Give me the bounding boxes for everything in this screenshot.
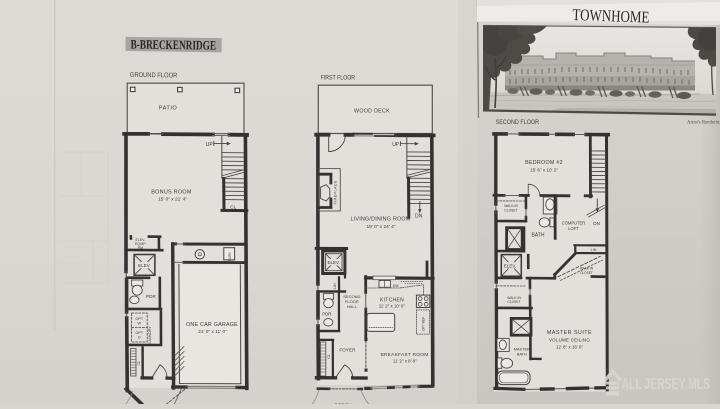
svg-text:11' 2" x 8' 8": 11' 2" x 8' 8" bbox=[393, 359, 417, 364]
svg-text:15' 0" x 21' 4": 15' 0" x 21' 4" bbox=[158, 197, 187, 203]
svg-text:CLOSET: CLOSET bbox=[580, 271, 593, 275]
svg-text:SECOND FLOOR: SECOND FLOOR bbox=[496, 119, 540, 126]
svg-text:CL: CL bbox=[230, 204, 236, 209]
svg-text:Artist's Rendering: Artist's Rendering bbox=[687, 121, 720, 126]
svg-text:PATIO: PATIO bbox=[159, 106, 178, 112]
svg-text:DN: DN bbox=[415, 213, 423, 219]
svg-text:ELEV.: ELEV. bbox=[328, 260, 340, 265]
svg-text:FIREPLACE: FIREPLACE bbox=[333, 180, 338, 204]
svg-text:LIVING/DINING ROOM: LIVING/DINING ROOM bbox=[351, 217, 411, 223]
svg-text:BONUS ROOM: BONUS ROOM bbox=[151, 189, 192, 195]
svg-text:UP: UP bbox=[206, 142, 214, 148]
svg-text:CLOSET: CLOSET bbox=[504, 209, 517, 213]
svg-text:OPT: OPT bbox=[136, 331, 144, 335]
svg-text:WALK-IN: WALK-IN bbox=[504, 204, 518, 208]
svg-text:COMPUTER: COMPUTER bbox=[562, 221, 585, 226]
svg-text:BEDROOM #2: BEDROOM #2 bbox=[525, 160, 563, 166]
svg-text:LOFT: LOFT bbox=[568, 226, 579, 231]
svg-text:OPT REF: OPT REF bbox=[421, 317, 425, 331]
svg-text:WOOD DECK: WOOD DECK bbox=[354, 109, 390, 115]
svg-text:FIRST FLOOR: FIRST FLOOR bbox=[321, 74, 356, 81]
svg-text:BREAKFAST ROOM: BREAKFAST ROOM bbox=[380, 352, 428, 358]
svg-text:LAUNDRY: LAUNDRY bbox=[148, 326, 152, 344]
svg-text:HALL: HALL bbox=[347, 304, 358, 309]
svg-text:TOWNHOME: TOWNHOME bbox=[572, 5, 650, 27]
svg-text:ELEV.: ELEV. bbox=[138, 263, 150, 268]
svg-text:MASTER SUITE: MASTER SUITE bbox=[547, 330, 592, 336]
svg-text:21' 0" x 11' 0": 21' 0" x 11' 0" bbox=[198, 329, 227, 335]
svg-text:15' 6" x 10' 2": 15' 6" x 10' 2" bbox=[530, 167, 558, 172]
svg-text:ONE CAR GARAGE: ONE CAR GARAGE bbox=[186, 322, 238, 328]
svg-text:LIN: LIN bbox=[591, 248, 597, 252]
svg-text:W: W bbox=[138, 321, 142, 325]
svg-text:CL: CL bbox=[137, 361, 141, 366]
svg-text:FURN: FURN bbox=[228, 252, 232, 262]
svg-text:VOLUME CEILING: VOLUME CEILING bbox=[549, 337, 590, 342]
svg-text:WALK-IN: WALK-IN bbox=[507, 296, 521, 300]
svg-text:11' 2" x 10' 0": 11' 2" x 10' 0" bbox=[379, 304, 406, 309]
svg-text:GROUND FLOOR: GROUND FLOOR bbox=[130, 72, 178, 80]
svg-text:12' 8" x 16' 8": 12' 8" x 16' 8" bbox=[556, 345, 584, 350]
svg-text:CLOSET: CLOSET bbox=[507, 300, 520, 304]
svg-text:RM: RM bbox=[138, 246, 144, 250]
svg-text:BATH: BATH bbox=[517, 351, 527, 356]
svg-text:LIN: LIN bbox=[333, 283, 337, 289]
svg-text:UP: UP bbox=[392, 142, 400, 148]
svg-text:KITCHEN: KITCHEN bbox=[380, 297, 404, 303]
svg-text:OPT: OPT bbox=[136, 317, 144, 321]
svg-text:PDR: PDR bbox=[322, 311, 331, 316]
svg-text:BATH: BATH bbox=[532, 232, 545, 238]
svg-text:FOYER: FOYER bbox=[339, 347, 356, 352]
svg-text:D: D bbox=[138, 336, 141, 340]
svg-text:CL: CL bbox=[327, 354, 331, 359]
svg-text:B-BRECKENRIDGE: B-BRECKENRIDGE bbox=[130, 36, 216, 52]
svg-text:DN: DN bbox=[593, 221, 600, 226]
svg-text:ALL JERSEY MLS: ALL JERSEY MLS bbox=[622, 376, 711, 393]
svg-text:19' 0" x 24' 4": 19' 0" x 24' 4" bbox=[367, 224, 396, 230]
svg-text:ELEV.: ELEV. bbox=[504, 263, 516, 268]
svg-text:PDR: PDR bbox=[146, 294, 157, 299]
